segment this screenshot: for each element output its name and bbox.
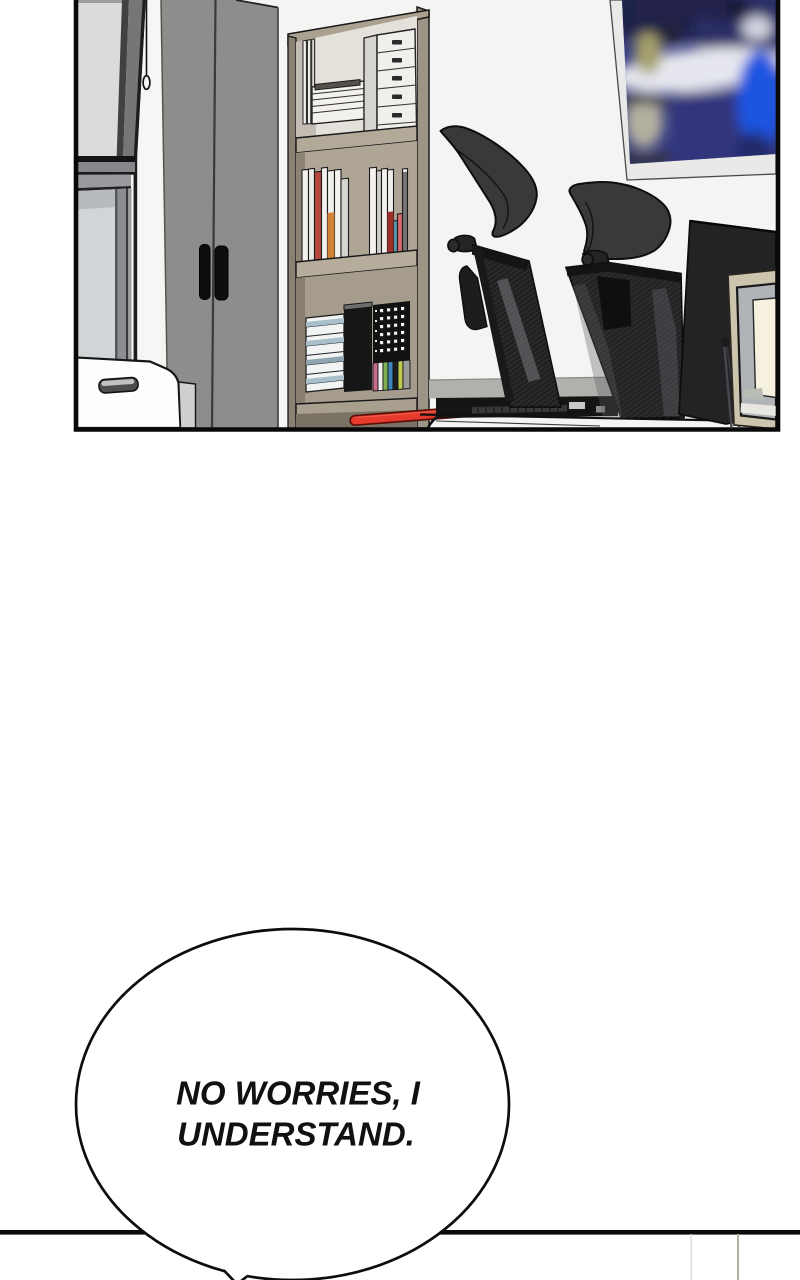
svg-text:NO WORRIES, I: NO WORRIES, I: [176, 1075, 421, 1112]
svg-text:UNDERSTAND.: UNDERSTAND.: [177, 1116, 415, 1153]
